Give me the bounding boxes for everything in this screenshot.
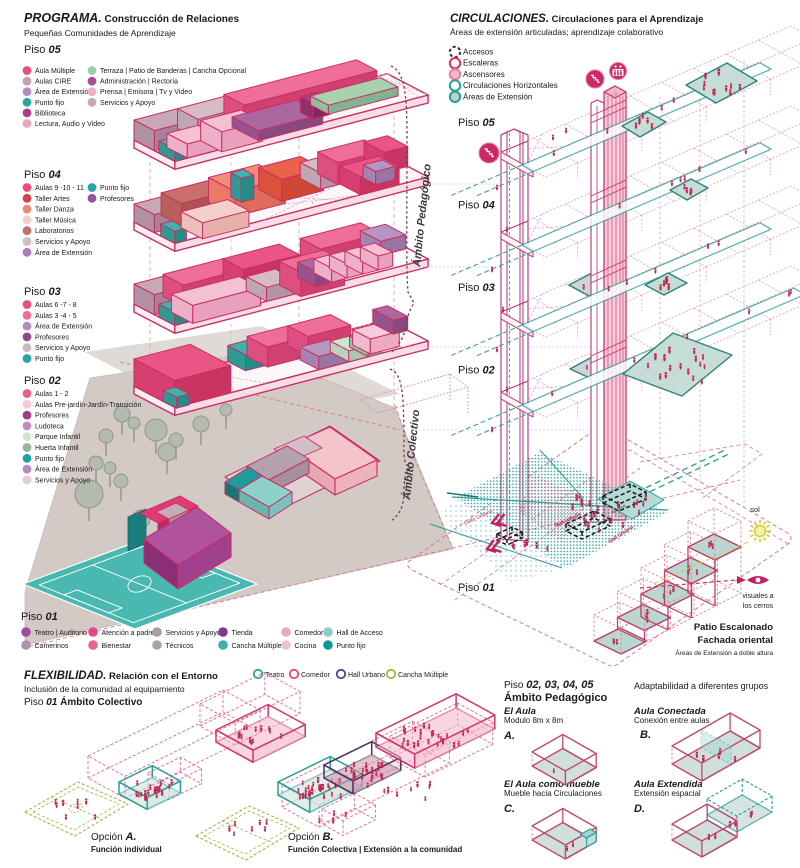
svg-text:Aula Múltiple: Aula Múltiple: [35, 68, 75, 75]
svg-text:Opción B.: Opción B.: [288, 831, 333, 843]
svg-text:Punto fijo: Punto fijo: [35, 356, 64, 363]
svg-text:Técnicos: Técnicos: [166, 643, 195, 650]
svg-text:Conexión entre aulas: Conexión entre aulas: [634, 716, 710, 725]
svg-text:Escaleras: Escaleras: [463, 59, 498, 68]
svg-text:Tienda: Tienda: [232, 630, 253, 637]
svg-text:Patio Escalonado: Patio Escalonado: [694, 622, 773, 633]
svg-text:Piso 02, 03, 04, 05: Piso 02, 03, 04, 05: [504, 679, 594, 691]
svg-text:Taller Artes: Taller Artes: [35, 196, 70, 203]
svg-text:Camerinos: Camerinos: [35, 643, 69, 650]
svg-text:Piso 05: Piso 05: [24, 44, 62, 56]
svg-text:Ámbito Pedagógico: Ámbito Pedagógico: [504, 691, 608, 704]
svg-text:CIRCULACIONES. Circulaciones p: CIRCULACIONES. Circulaciones para el Apr…: [450, 13, 703, 25]
svg-text:Administración | Rectoría: Administración | Rectoría: [100, 79, 178, 86]
svg-text:Función Colectiva | Extensión: Función Colectiva | Extensión a la comun…: [288, 845, 462, 854]
svg-text:Piso 05: Piso 05: [458, 117, 496, 129]
svg-text:Área de Extensión: Área de Extensión: [35, 87, 92, 96]
svg-text:Servicios y Apoyo: Servicios y Apoyo: [100, 100, 155, 107]
svg-text:Piso 03: Piso 03: [24, 286, 61, 298]
svg-text:Accesos: Accesos: [463, 48, 493, 57]
svg-text:Inclusión de la comunidad al e: Inclusión de la comunidad al equipamient…: [24, 684, 185, 694]
svg-text:Modulo 8m x 8m: Modulo 8m x 8m: [504, 716, 563, 725]
svg-text:D.: D.: [634, 803, 645, 815]
svg-text:Lectura, Audio y Video: Lectura, Audio y Video: [35, 121, 105, 128]
svg-text:Opción A.: Opción A.: [91, 831, 136, 843]
svg-text:Piso 02: Piso 02: [458, 365, 495, 377]
svg-text:Hall de Acceso: Hall de Acceso: [337, 630, 383, 637]
svg-text:Pequeñas Comunidades de Aprend: Pequeñas Comunidades de Aprendizaje: [24, 28, 176, 38]
svg-text:Laboratorios: Laboratorios: [35, 228, 74, 235]
svg-text:Cocina: Cocina: [295, 643, 317, 650]
svg-text:Aulas 3 -4 - 5: Aulas 3 -4 - 5: [35, 313, 77, 320]
svg-text:Aulas CIRE: Aulas CIRE: [35, 79, 72, 86]
svg-text:Piso 02: Piso 02: [24, 375, 61, 387]
svg-text:sol: sol: [750, 505, 760, 514]
svg-text:Servicios y Apoyo: Servicios y Apoyo: [35, 345, 90, 352]
svg-text:Hall Urbano: Hall Urbano: [348, 672, 385, 679]
svg-text:Teatro | Auditorio: Teatro | Auditorio: [35, 630, 88, 637]
svg-text:Aulas 1 - 2: Aulas 1 - 2: [35, 391, 69, 398]
svg-text:Comedor: Comedor: [295, 630, 324, 637]
svg-text:Terraza | Patio de Banderas |: Terraza | Patio de Banderas | Cancha Opc…: [100, 68, 246, 75]
svg-text:Punto fijo: Punto fijo: [35, 456, 64, 463]
svg-text:Piso 03: Piso 03: [458, 282, 495, 294]
svg-text:Servicios y Apoyo: Servicios y Apoyo: [166, 630, 221, 637]
svg-text:Áreas de Extensión a doble alt: Áreas de Extensión a doble altura: [675, 648, 773, 657]
svg-text:PROGRAMA. Construcción de Rela: PROGRAMA. Construcción de Relaciones: [24, 11, 239, 25]
svg-text:Biblioteca: Biblioteca: [35, 110, 65, 117]
svg-text:A.: A.: [503, 730, 515, 742]
svg-text:Extensión espacial: Extensión espacial: [634, 789, 701, 798]
svg-text:Función individual: Función individual: [91, 845, 162, 854]
svg-text:Circulaciones Horizontales: Circulaciones Horizontales: [463, 81, 558, 90]
svg-text:Ascensores: Ascensores: [463, 70, 505, 79]
svg-text:Cancha Múltiple: Cancha Múltiple: [398, 672, 448, 679]
svg-text:Teatro: Teatro: [265, 672, 285, 679]
svg-text:Piso 01 Ámbito Colectivo: Piso 01 Ámbito Colectivo: [24, 695, 142, 708]
svg-text:Aulas 6 -7 - 8: Aulas 6 -7 - 8: [35, 302, 77, 309]
svg-text:Taller Danza: Taller Danza: [35, 207, 74, 214]
svg-text:Profesores: Profesores: [35, 413, 69, 420]
svg-text:Huerta Infantil: Huerta Infantil: [35, 445, 79, 452]
svg-text:Piso 04: Piso 04: [24, 169, 61, 181]
svg-text:Área de Extensión: Área de Extensión: [35, 248, 92, 257]
svg-text:Prensa | Emisora | Tv y Video: Prensa | Emisora | Tv y Video: [100, 89, 192, 96]
svg-text:Aulas 9 -10 - 11: Aulas 9 -10 - 11: [35, 185, 84, 192]
svg-text:Áreas de Extensión: Áreas de Extensión: [463, 92, 532, 101]
svg-text:Ludoteca: Ludoteca: [35, 423, 64, 430]
svg-text:Piso 01: Piso 01: [458, 582, 495, 594]
svg-text:Punto fijo: Punto fijo: [100, 185, 129, 192]
svg-text:Servicios y Apoyo: Servicios y Apoyo: [35, 477, 90, 484]
svg-text:Fachada oriental: Fachada oriental: [698, 635, 774, 646]
svg-text:Punto fijo: Punto fijo: [35, 100, 64, 107]
svg-text:Atención a padres: Atención a padres: [102, 630, 159, 637]
svg-text:Profesores: Profesores: [100, 196, 134, 203]
svg-text:Servicios y Apoyo: Servicios y Apoyo: [35, 239, 90, 246]
svg-text:Piso 04: Piso 04: [458, 200, 495, 212]
svg-text:Adaptabilidad a diferentes gru: Adaptabilidad a diferentes grupos: [634, 681, 769, 691]
svg-text:Piso 01: Piso 01: [21, 611, 58, 623]
svg-text:Cancha Múltiple: Cancha Múltiple: [232, 643, 282, 650]
svg-text:Parque Infantil: Parque Infantil: [35, 434, 81, 441]
svg-text:Bienestar: Bienestar: [102, 643, 132, 650]
svg-text:Áreas de extensión articuladas: Áreas de extensión articuladas; aprendiz…: [450, 27, 663, 37]
svg-text:Mueble hacia Circulaciones: Mueble hacia Circulaciones: [504, 789, 602, 798]
svg-text:C.: C.: [504, 803, 515, 815]
svg-text:Área de Extensión: Área de Extensión: [35, 465, 92, 474]
svg-text:Punto fijo: Punto fijo: [337, 643, 366, 650]
svg-text:Profesores: Profesores: [35, 334, 69, 341]
svg-text:Área de Extensión: Área de Extensión: [35, 322, 92, 331]
svg-text:FLEXIBILIDAD. Relación con el: FLEXIBILIDAD. Relación con el Entorno: [24, 670, 218, 682]
svg-text:los cerros: los cerros: [743, 603, 774, 610]
svg-text:Comedor: Comedor: [301, 672, 330, 679]
svg-text:visuales a: visuales a: [742, 593, 773, 600]
svg-text:Taller Música: Taller Música: [35, 217, 76, 224]
svg-text:Aulas Pre-jardín-Jardín-Transi: Aulas Pre-jardín-Jardín-Transición: [35, 402, 141, 409]
svg-text:B.: B.: [640, 729, 651, 741]
